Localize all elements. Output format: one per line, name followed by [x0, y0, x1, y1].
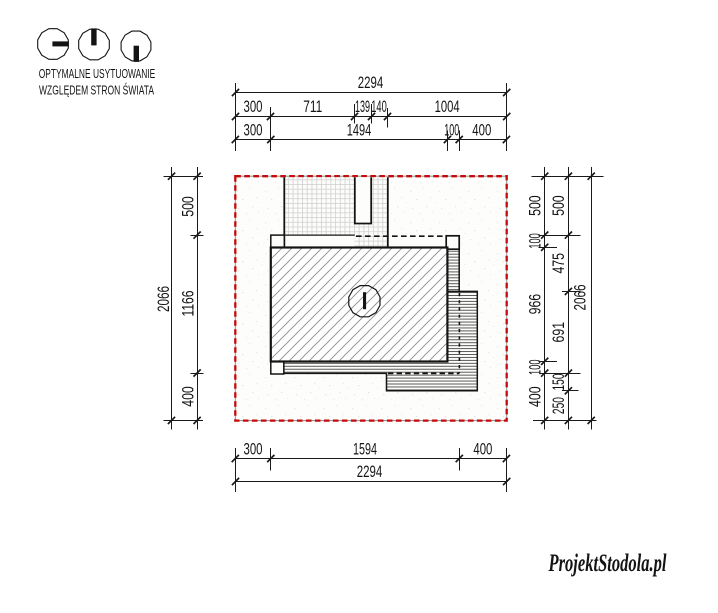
- svg-text:300: 300: [244, 440, 263, 459]
- svg-text:300: 300: [244, 97, 263, 116]
- svg-text:400: 400: [525, 386, 544, 407]
- svg-text:500: 500: [549, 195, 568, 216]
- svg-text:400: 400: [472, 121, 491, 140]
- svg-text:2066: 2066: [571, 285, 590, 311]
- svg-text:139: 139: [355, 97, 370, 116]
- svg-text:1594: 1594: [353, 440, 377, 459]
- svg-text:500: 500: [178, 196, 197, 217]
- svg-text:250: 250: [549, 397, 568, 414]
- svg-text:100: 100: [525, 359, 544, 375]
- svg-text:ProjektStodola.pl: ProjektStodola.pl: [548, 550, 667, 577]
- svg-text:140: 140: [371, 97, 387, 116]
- svg-text:500: 500: [525, 195, 544, 216]
- svg-text:2294: 2294: [358, 73, 384, 92]
- svg-text:711: 711: [303, 97, 322, 116]
- svg-text:966: 966: [525, 294, 544, 315]
- svg-text:100: 100: [525, 233, 544, 249]
- svg-text:150: 150: [549, 374, 568, 391]
- svg-text:WZGLĘDEM STRON ŚWIATA: WZGLĘDEM STRON ŚWIATA: [39, 83, 154, 98]
- svg-text:400: 400: [178, 386, 197, 407]
- svg-text:1004: 1004: [435, 97, 460, 116]
- svg-text:OPTYMALNE USYTUOWANIE: OPTYMALNE USYTUOWANIE: [39, 66, 156, 81]
- svg-text:475: 475: [549, 253, 568, 274]
- svg-text:1166: 1166: [178, 291, 197, 317]
- svg-text:691: 691: [549, 322, 568, 343]
- svg-text:300: 300: [244, 121, 263, 140]
- svg-text:2066: 2066: [154, 286, 173, 312]
- svg-text:1494: 1494: [347, 121, 372, 140]
- svg-text:2294: 2294: [357, 462, 383, 481]
- svg-text:400: 400: [473, 440, 492, 459]
- svg-text:100: 100: [444, 121, 459, 140]
